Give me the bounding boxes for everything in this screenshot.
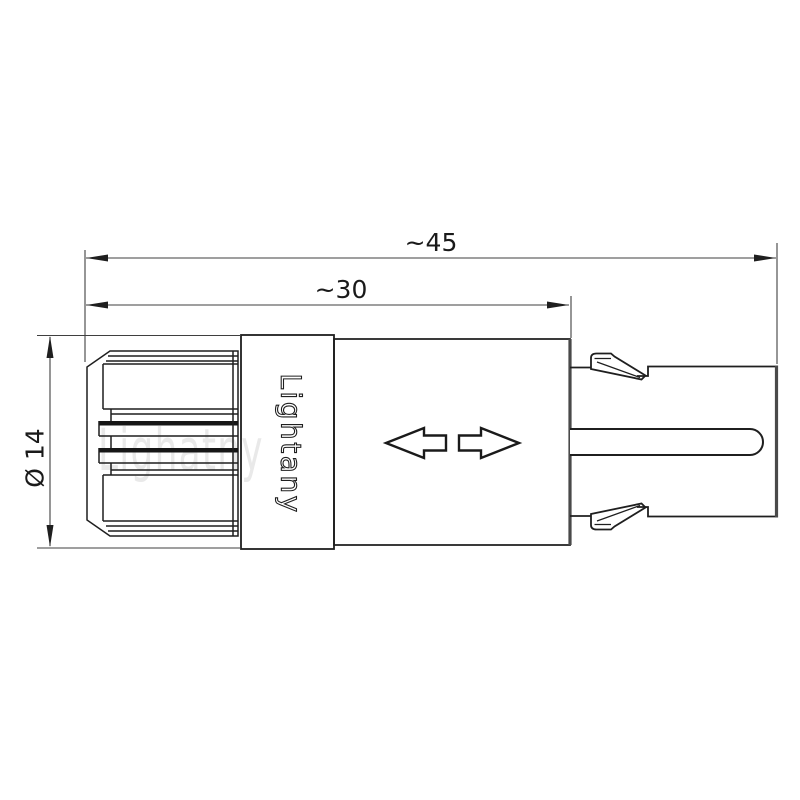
dim-arrow-left (86, 302, 108, 309)
technical-drawing-page: Lighatny Lightany (0, 0, 800, 800)
connector-body-fill (334, 339, 570, 545)
contact-slot (570, 429, 763, 455)
gland-rib-band-1 (99, 421, 238, 426)
dim-arrow-right (547, 302, 569, 309)
dim-arrow-left (86, 255, 108, 262)
technical-drawing-canvas: Lighatny Lightany (0, 0, 800, 800)
dim-arrow-right (754, 255, 776, 262)
dim-arrow-up (47, 336, 54, 358)
dimension-30-label: ~30 (315, 275, 368, 304)
dimension-45-label: ~45 (405, 228, 458, 257)
dim-arrow-down (47, 525, 54, 547)
gland-rib-band-2 (99, 448, 238, 453)
diameter-label: Ø 14 (21, 428, 50, 487)
brand-label: Lightany (275, 373, 308, 514)
